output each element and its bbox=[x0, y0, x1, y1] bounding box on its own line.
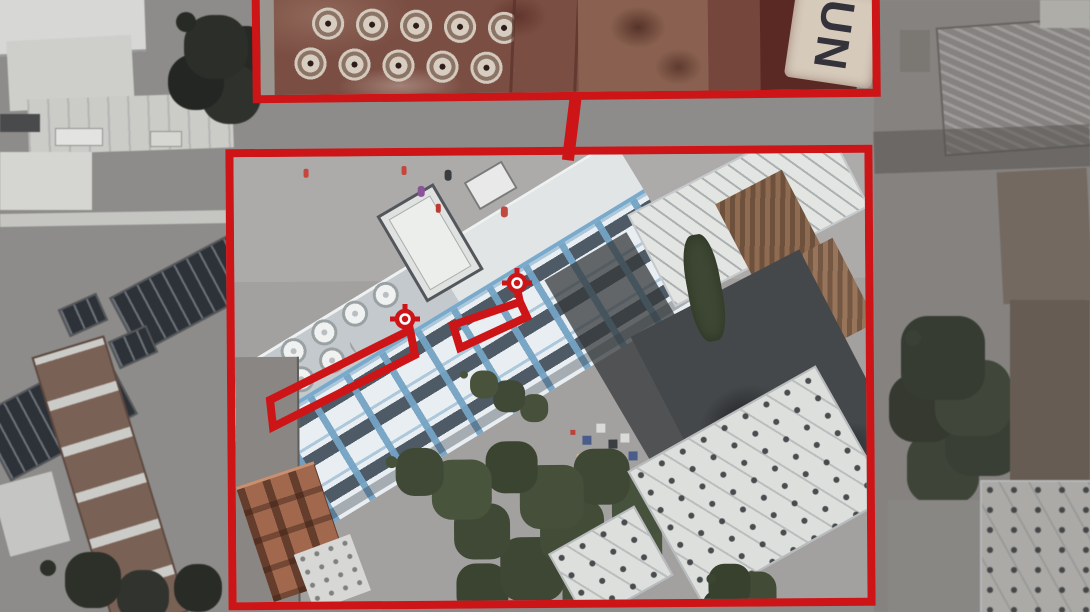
building-overview-box bbox=[225, 145, 875, 611]
palm-tree bbox=[706, 574, 716, 584]
inset-zoom-box: UN bbox=[251, 0, 881, 103]
roof-edge-strip bbox=[259, 0, 274, 95]
roof-section-light bbox=[577, 0, 708, 92]
light-roof bbox=[1040, 0, 1090, 28]
un-roof-marking-text: UN bbox=[806, 0, 862, 75]
dark-truck bbox=[0, 114, 40, 132]
tree-canopy-cluster bbox=[386, 456, 398, 468]
water-tank-row bbox=[290, 45, 515, 90]
brown-building bbox=[1010, 300, 1090, 485]
solar-panel bbox=[58, 293, 109, 337]
courtyard-clutter bbox=[570, 430, 575, 435]
gray-rooftop bbox=[980, 480, 1090, 612]
brown-building bbox=[997, 168, 1090, 305]
water-tank-row bbox=[308, 5, 515, 50]
gray-building bbox=[888, 500, 980, 612]
white-rooftop bbox=[0, 471, 70, 557]
white-building bbox=[0, 152, 92, 210]
truck bbox=[150, 131, 182, 147]
small-structure bbox=[900, 30, 930, 72]
people-on-roof bbox=[304, 169, 309, 178]
bushes bbox=[460, 371, 468, 379]
aerial-surveillance-image: UN bbox=[0, 0, 1090, 612]
tree-cluster bbox=[40, 560, 56, 576]
tree-cluster bbox=[176, 12, 196, 32]
un-roof-marking-patch: UN bbox=[784, 0, 881, 89]
truck bbox=[55, 128, 103, 146]
wall-line bbox=[0, 210, 232, 227]
street-shadow bbox=[873, 124, 1090, 174]
palm-tree bbox=[905, 330, 921, 346]
